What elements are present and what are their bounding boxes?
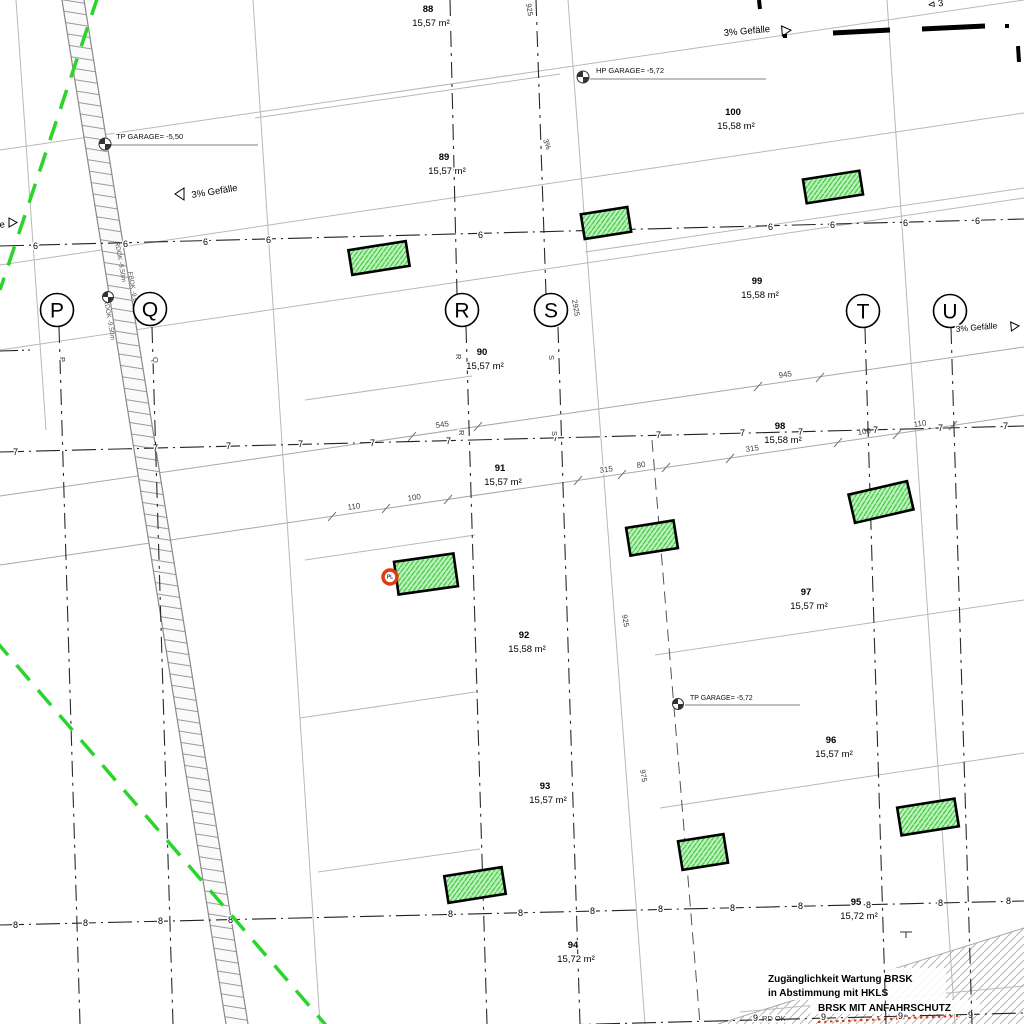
svg-text:91: 91 — [495, 463, 506, 474]
note-maintenance-line2: in Abstimmung mit HKLS — [768, 988, 889, 999]
svg-text:6: 6 — [768, 222, 773, 232]
svg-text:Q: Q — [142, 299, 158, 322]
ramp-survey-marker — [103, 292, 114, 303]
svg-text:6: 6 — [830, 220, 835, 230]
svg-text:8: 8 — [590, 906, 595, 916]
svg-text:7: 7 — [370, 438, 375, 448]
stall-rect — [897, 799, 959, 836]
svg-text:3%: 3% — [541, 138, 553, 152]
slope-label-top-right: 3% Gefälle — [723, 24, 791, 39]
svg-text:3% Gefälle: 3% Gefälle — [191, 183, 239, 201]
vertical-dimension-texts: 2925 925 975 925 3% — [524, 3, 649, 783]
svg-text:S: S — [547, 355, 556, 360]
svg-text:90: 90 — [477, 347, 488, 358]
svg-text:15,58 m²: 15,58 m² — [717, 121, 755, 132]
svg-text:TP GARAGE= -5,50: TP GARAGE= -5,50 — [116, 132, 183, 141]
svg-text:S: S — [550, 431, 559, 436]
stall-rect — [803, 171, 863, 204]
svg-text:8: 8 — [866, 900, 871, 910]
svg-text:9: 9 — [821, 1012, 826, 1022]
stall-rect — [849, 481, 914, 523]
dim-545: 545 — [435, 419, 450, 430]
svg-text:U: U — [942, 301, 957, 324]
svg-text:15,72 m²: 15,72 m² — [557, 954, 595, 965]
svg-text:96: 96 — [826, 735, 837, 746]
svg-text:S: S — [544, 300, 558, 323]
svg-text:6: 6 — [33, 241, 38, 251]
svg-text:7: 7 — [298, 439, 303, 449]
svg-text:15,57 m²: 15,57 m² — [428, 166, 466, 177]
svg-text:6: 6 — [123, 239, 128, 249]
svg-text:15,57 m²: 15,57 m² — [790, 601, 828, 612]
svg-text:7: 7 — [226, 441, 231, 451]
svg-text:6: 6 — [903, 218, 908, 228]
site-boundary-thick-dashes — [759, 0, 1019, 62]
stall-rect — [444, 867, 506, 903]
svg-text:3% Gefälle: 3% Gefälle — [723, 24, 770, 39]
svg-text:8: 8 — [518, 908, 523, 918]
slope-label-left: 3% Gefälle — [175, 183, 238, 201]
svg-text:TP GARAGE= -5,72: TP GARAGE= -5,72 — [690, 695, 753, 702]
svg-text:7: 7 — [656, 430, 661, 440]
svg-text:975: 975 — [638, 769, 649, 783]
svg-text:PL: PL — [387, 575, 393, 581]
svg-text:P: P — [50, 300, 64, 323]
svg-text:8: 8 — [730, 903, 735, 913]
svg-text:7: 7 — [740, 428, 745, 438]
svg-text:8: 8 — [158, 916, 163, 926]
slope-label-right: 3% Gefälle — [955, 320, 1019, 334]
svg-text:8: 8 — [448, 909, 453, 919]
axis-bubble-R: R — [446, 294, 479, 327]
svg-text:98: 98 — [775, 421, 786, 432]
svg-text:8: 8 — [938, 898, 943, 908]
dim-80: 80 — [636, 460, 647, 470]
dim-100-a: 100 — [407, 492, 422, 503]
svg-text:15,58 m²: 15,58 m² — [741, 290, 779, 301]
level-marker-hp-572: HP GARAGE= -5,72 — [577, 66, 766, 83]
stall-rect — [394, 553, 458, 594]
svg-text:7: 7 — [938, 423, 943, 433]
svg-text:15,57 m²: 15,57 m² — [815, 749, 853, 760]
svg-text:15,57 m²: 15,57 m² — [466, 361, 504, 372]
stall-rect — [678, 834, 728, 870]
stall-labels: 88 15,57 m² 89 15,57 m² 90 15,57 m² 91 1… — [412, 4, 878, 965]
svg-text:93: 93 — [540, 781, 551, 792]
stall-rect — [626, 520, 678, 555]
ramp-band — [62, 0, 248, 1024]
svg-text:R: R — [454, 354, 463, 360]
svg-text:99: 99 — [752, 276, 763, 287]
svg-text:89: 89 — [439, 152, 450, 163]
svg-text:8: 8 — [83, 918, 88, 928]
plan-canvas: 545 945 110 100 315 80 315 100 110 RDOK … — [0, 0, 1024, 1024]
svg-text:15,57 m²: 15,57 m² — [484, 477, 522, 488]
note-maintenance-line1: Zugänglichkeit Wartung BRSK — [768, 974, 913, 985]
dim-110-b: 110 — [913, 418, 927, 429]
survey-tick — [900, 932, 912, 938]
svg-text:T: T — [857, 301, 870, 324]
slope-fragment-left-edge: e — [0, 218, 17, 231]
svg-text:6: 6 — [203, 237, 208, 247]
svg-text:R: R — [457, 430, 466, 436]
svg-text:15,58 m²: 15,58 m² — [764, 435, 802, 446]
level-marker-tp-550: TP GARAGE= -5,50 — [99, 132, 258, 150]
svg-text:P: P — [58, 357, 67, 362]
axis-bubble-Q: Q — [134, 293, 167, 326]
svg-text:6: 6 — [478, 230, 483, 240]
svg-text:6: 6 — [975, 216, 980, 226]
svg-text:9: 9 — [753, 1013, 758, 1023]
axis-bubble-P: P — [41, 294, 74, 327]
axis-6-line — [0, 219, 1024, 246]
vertical-axis-lines — [59, 0, 972, 1024]
site-plan-drawing: 545 945 110 100 315 80 315 100 110 RDOK … — [0, 0, 1024, 1024]
svg-text:94: 94 — [568, 940, 579, 951]
note-protection: BRSK MIT ANFAHRSCHUTZ — [818, 1003, 951, 1014]
stall-rect — [348, 241, 409, 275]
svg-text:9: 9 — [898, 1011, 903, 1021]
svg-text:6: 6 — [266, 235, 271, 245]
slope-fragment-top-right: ⊲ 3 — [927, 0, 944, 11]
svg-text:7: 7 — [446, 436, 451, 446]
stall-rectangles — [348, 171, 958, 903]
dim-315-a: 315 — [599, 464, 614, 475]
svg-text:925: 925 — [524, 3, 535, 17]
dim-110-a: 110 — [347, 501, 361, 512]
svg-text:8: 8 — [798, 901, 803, 911]
svg-text:925: 925 — [620, 614, 631, 628]
svg-text:2925: 2925 — [570, 299, 582, 317]
svg-text:8: 8 — [1006, 896, 1011, 906]
svg-text:e: e — [0, 219, 6, 231]
svg-text:7: 7 — [1003, 421, 1008, 431]
dim-315-b: 315 — [745, 443, 760, 454]
dim-100-b: 100 — [857, 426, 872, 437]
svg-text:97: 97 — [801, 587, 812, 598]
svg-text:8: 8 — [658, 904, 663, 914]
svg-text:Q: Q — [151, 357, 160, 363]
svg-text:15,58 m²: 15,58 m² — [508, 644, 546, 655]
stall-rect — [581, 207, 631, 239]
axis-6-labels: 6 6 6 6 6 6 6 6 6 6 — [33, 216, 980, 251]
svg-text:88: 88 — [423, 4, 434, 15]
svg-text:R: R — [454, 300, 469, 323]
svg-text:7: 7 — [13, 447, 18, 457]
svg-text:92: 92 — [519, 630, 530, 641]
level-marker-tp-572: TP GARAGE= -5,72 — [673, 695, 801, 710]
svg-text:15,57 m²: 15,57 m² — [529, 795, 567, 806]
axis-bubble-T: T — [847, 295, 880, 328]
pl-point-marker: PL — [383, 570, 397, 584]
svg-text:95: 95 — [851, 897, 862, 908]
svg-text:HP GARAGE= -5,72: HP GARAGE= -5,72 — [596, 66, 664, 75]
svg-text:8: 8 — [13, 920, 18, 930]
dim-945: 945 — [778, 369, 793, 380]
svg-text:7: 7 — [873, 425, 878, 435]
svg-text:15,57 m²: 15,57 m² — [412, 18, 450, 29]
axis-bubble-S: S — [535, 294, 568, 327]
svg-text:100: 100 — [725, 107, 741, 118]
note-bottom-fragment: RD OK — [762, 1014, 786, 1023]
svg-text:15,72 m²: 15,72 m² — [840, 911, 878, 922]
